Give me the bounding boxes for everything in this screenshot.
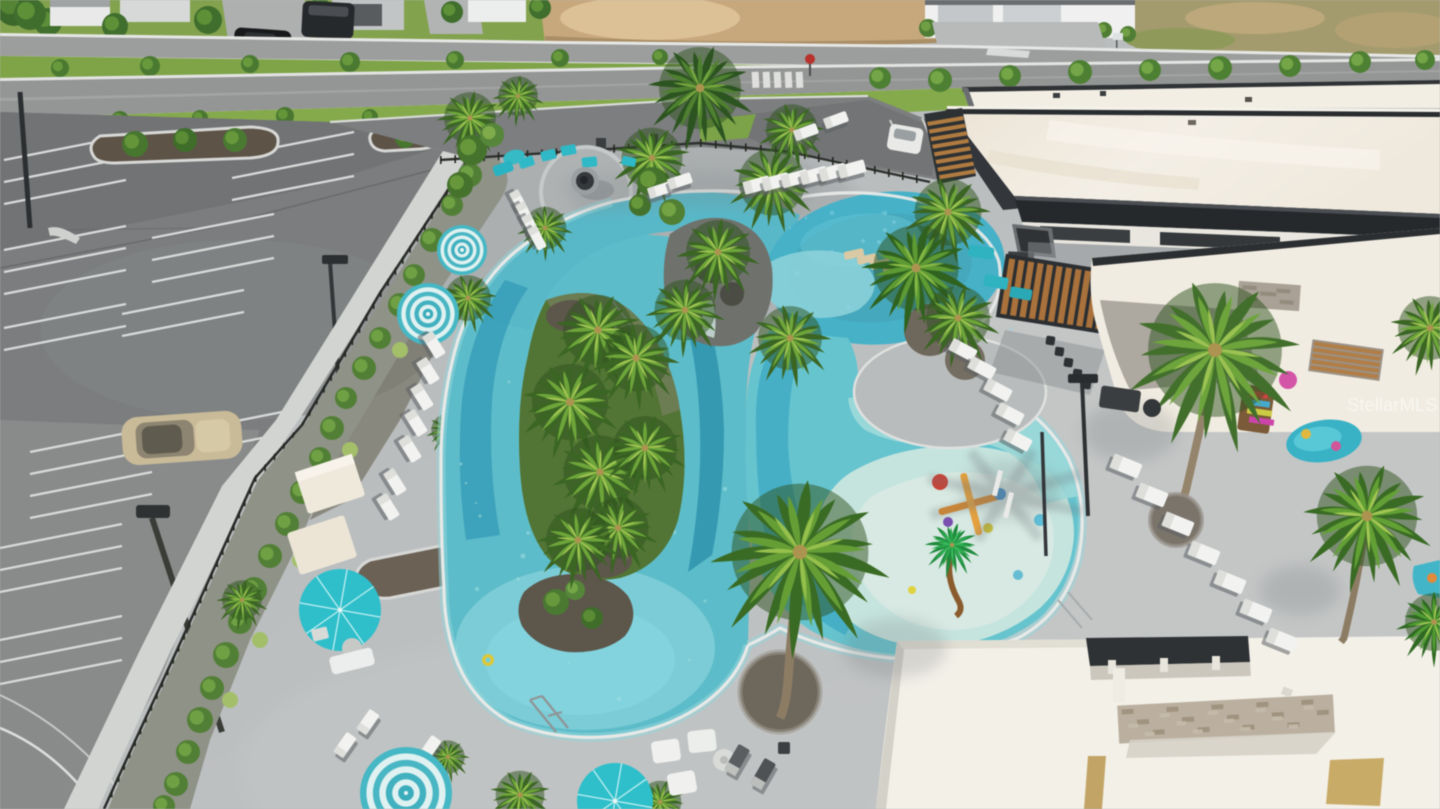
svg-text:StellarMLS: StellarMLS [1347, 394, 1437, 415]
